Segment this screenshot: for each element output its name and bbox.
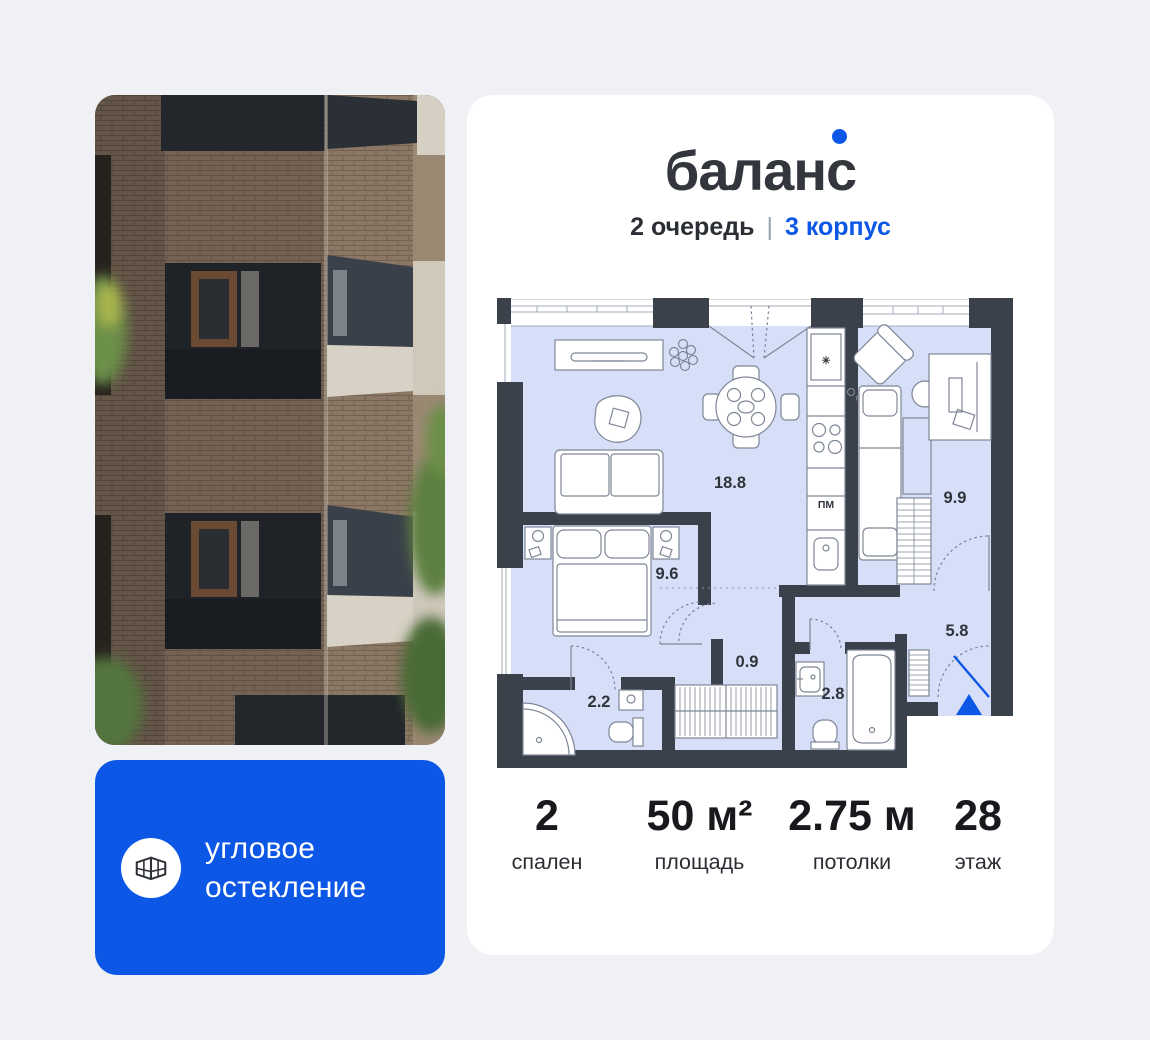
stat-bedrooms-value: 2 (477, 793, 617, 840)
corner-glazing-badge: угловое остекление (95, 760, 445, 975)
room-label-hall: 5.8 (946, 622, 969, 640)
closet (675, 685, 777, 738)
stat-floor-label: этаж (922, 850, 1034, 875)
room-label-living: 18.8 (714, 474, 746, 492)
tv-unit (555, 340, 663, 370)
stat-floor-value: 28 (922, 793, 1034, 840)
svg-text:✳: ✳ (822, 355, 831, 367)
bathtub (847, 650, 895, 750)
dishwasher-label: ПМ (818, 499, 835, 511)
subtitle: 2 очередь|3 корпус (467, 213, 1054, 242)
building-label[interactable]: 3 корпус (785, 213, 891, 241)
wardrobe-bedroom2 (897, 498, 931, 584)
stat-area: 50 м² площадь (622, 793, 777, 875)
badge-line1: угловое (205, 829, 366, 868)
nightstand-right (653, 527, 679, 559)
sofa (555, 450, 663, 514)
sink-bath (796, 662, 824, 696)
logo: баланс (665, 143, 856, 199)
room-label-corridor: 0.9 (736, 653, 759, 671)
pouf (595, 396, 641, 442)
room-label-bedroom: 9.6 (656, 565, 679, 583)
building-photo-art (95, 95, 445, 745)
room-label-bath: 2.8 (822, 685, 845, 703)
stat-ceiling: 2.75 м потолки (777, 793, 927, 875)
building-photo (95, 95, 445, 745)
bedroom-window (499, 568, 511, 674)
corner-window-icon (121, 838, 181, 898)
stat-area-label: площадь (622, 850, 777, 875)
wardrobe-hall (909, 650, 929, 696)
single-bed (859, 386, 901, 560)
logo-wrap: баланс (467, 143, 1054, 199)
room-label-shower: 2.2 (588, 693, 611, 711)
stat-bedrooms-label: спален (477, 850, 617, 875)
bedroom2-window (863, 300, 969, 326)
stat-ceiling-label: потолки (777, 850, 927, 875)
stat-floor: 28 этаж (922, 793, 1034, 875)
badge-line2: остекление (205, 868, 366, 907)
subtitle-separator: | (766, 213, 773, 241)
toilet-bath (811, 720, 839, 749)
toilet-shower-room (609, 718, 643, 746)
sink-shower-room (619, 690, 643, 710)
stat-bedrooms: 2 спален (477, 793, 617, 875)
room-label-bedroom2: 9.9 (944, 489, 967, 507)
stat-area-value: 50 м² (622, 793, 777, 840)
badge-label: угловое остекление (205, 829, 366, 907)
apartment-card: баланс 2 очередь|3 корпус (467, 95, 1054, 955)
double-bed (553, 526, 651, 636)
floor-plan[interactable]: ✳ ПМ (497, 298, 1013, 768)
stat-ceiling-value: 2.75 м (777, 793, 927, 840)
logo-text: баланс (665, 139, 856, 202)
phase-label: 2 очередь (630, 213, 754, 241)
nightstand-left (525, 527, 551, 559)
stats-row: 2 спален 50 м² площадь 2.75 м потолки 28… (467, 793, 1054, 923)
